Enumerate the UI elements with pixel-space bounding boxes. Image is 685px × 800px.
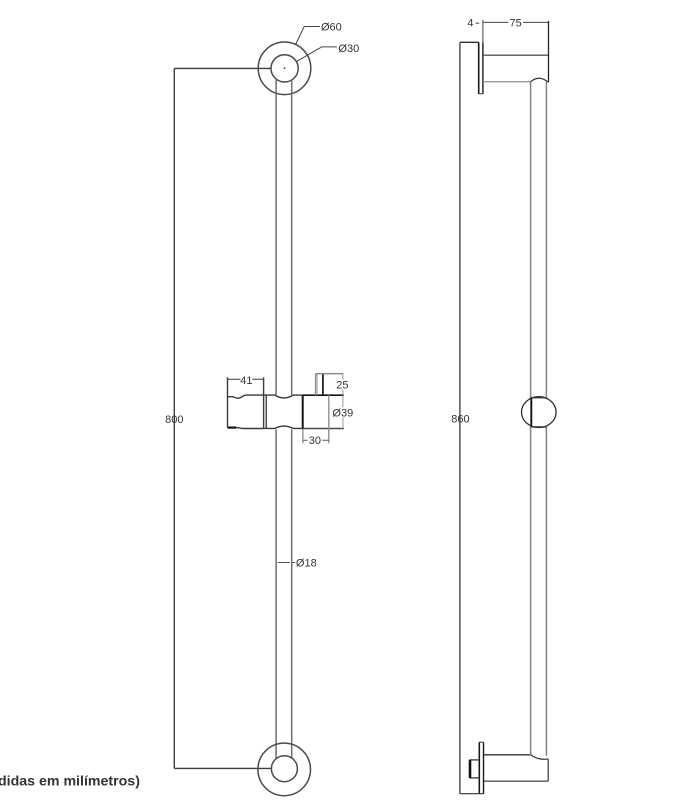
svg-text:75: 75 <box>509 18 521 30</box>
svg-text:30: 30 <box>309 435 321 447</box>
svg-text:25: 25 <box>336 379 348 391</box>
svg-text:860: 860 <box>451 414 469 426</box>
svg-text:800: 800 <box>165 414 183 426</box>
svg-text:4: 4 <box>467 18 473 30</box>
svg-text:Ø18: Ø18 <box>296 558 317 570</box>
svg-text:Ø30: Ø30 <box>338 43 359 55</box>
svg-text:didas em milímetros): didas em milímetros) <box>0 774 140 790</box>
svg-text:Ø60: Ø60 <box>321 21 342 33</box>
svg-text:41: 41 <box>240 375 252 387</box>
svg-text:Ø39: Ø39 <box>332 407 353 419</box>
